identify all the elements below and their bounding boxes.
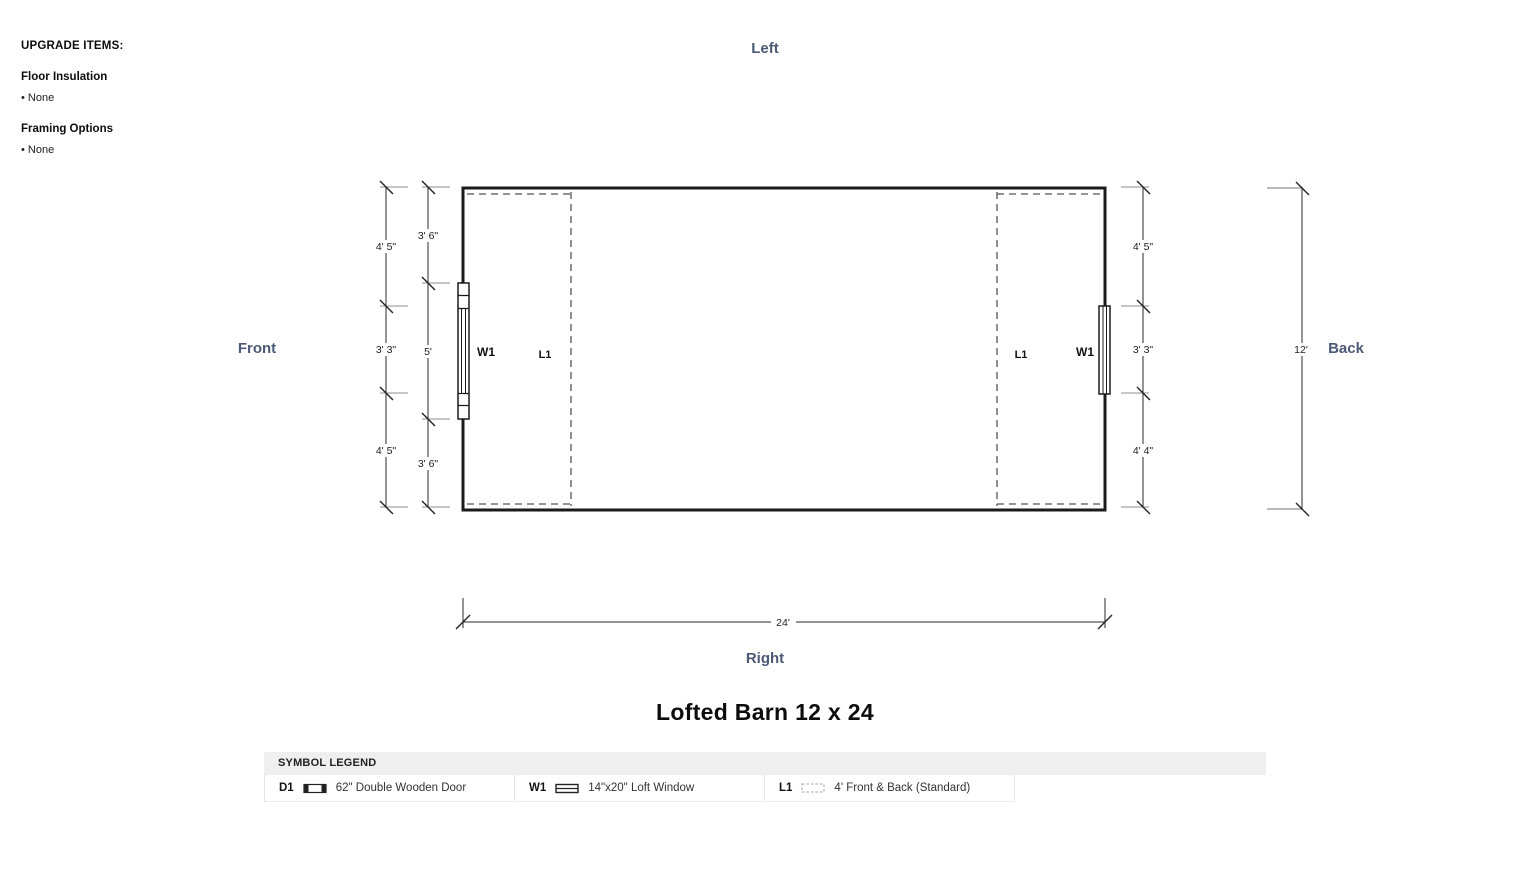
dimension-label: 3' 6" [418, 458, 439, 470]
dimension-label-total-depth: 12' [1294, 344, 1308, 356]
front-wall-window-symbol [458, 283, 469, 419]
dimension-label-total-width: 24' [776, 617, 790, 629]
dimension-label: 4' 5" [376, 445, 397, 457]
legend-code-d1: D1 [279, 782, 294, 794]
dimension-label: 4' 5" [376, 241, 397, 253]
dimension-chain-right: 4' 5" 3' 3" 4' 4" [1121, 181, 1159, 514]
dimension-label: 5' [424, 346, 432, 358]
front-loft-label: L1 [539, 349, 552, 361]
legend-label-window: 14"x20" Loft Window [588, 782, 694, 794]
dimension-chain-left-inner: 3' 6" 5' 3' 6" [412, 181, 450, 514]
symbol-legend-row: D1 62" Double Wooden Door W1 [264, 775, 1016, 802]
legend-code-l1: L1 [779, 782, 792, 794]
back-loft-label: L1 [1015, 349, 1028, 361]
legend-entry-loft: L1 4' Front & Back (Standard) [765, 775, 1015, 801]
dimension-chain-left-outer: 4' 5" 3' 3" 4' 5" [370, 181, 408, 514]
building-outline [463, 188, 1105, 510]
dimension-label: 4' 4" [1133, 445, 1154, 457]
symbol-legend: SYMBOL LEGEND D1 62" Double Wooden Door … [264, 752, 1266, 802]
legend-entry-door: D1 62" Double Wooden Door [265, 775, 515, 801]
back-window-label: W1 [1076, 345, 1094, 359]
dimension-label: 3' 3" [376, 344, 397, 356]
legend-code-w1: W1 [529, 782, 546, 794]
floor-plan-page: UPGRADE ITEMS: Floor Insulation • None F… [0, 0, 1530, 890]
dimension-label: 4' 5" [1133, 241, 1154, 253]
dimension-total-depth: 12' [1267, 182, 1314, 516]
legend-label-door: 62" Double Wooden Door [336, 782, 466, 794]
dimension-label: 3' 3" [1133, 344, 1154, 356]
loft-window-icon [555, 783, 579, 794]
back-wall-window-symbol [1099, 306, 1110, 394]
double-door-icon [303, 783, 327, 794]
legend-entry-window: W1 14"x20" Loft Window [515, 775, 765, 801]
plan-title: Lofted Barn 12 x 24 [0, 699, 1530, 726]
symbol-legend-header: SYMBOL LEGEND [264, 752, 1266, 775]
dimension-total-width: 24' [456, 598, 1112, 629]
front-window-label: W1 [477, 345, 495, 359]
loft-area-dashed-icon [801, 782, 825, 794]
legend-label-loft: 4' Front & Back (Standard) [834, 782, 970, 794]
dimension-label: 3' 6" [418, 230, 439, 242]
